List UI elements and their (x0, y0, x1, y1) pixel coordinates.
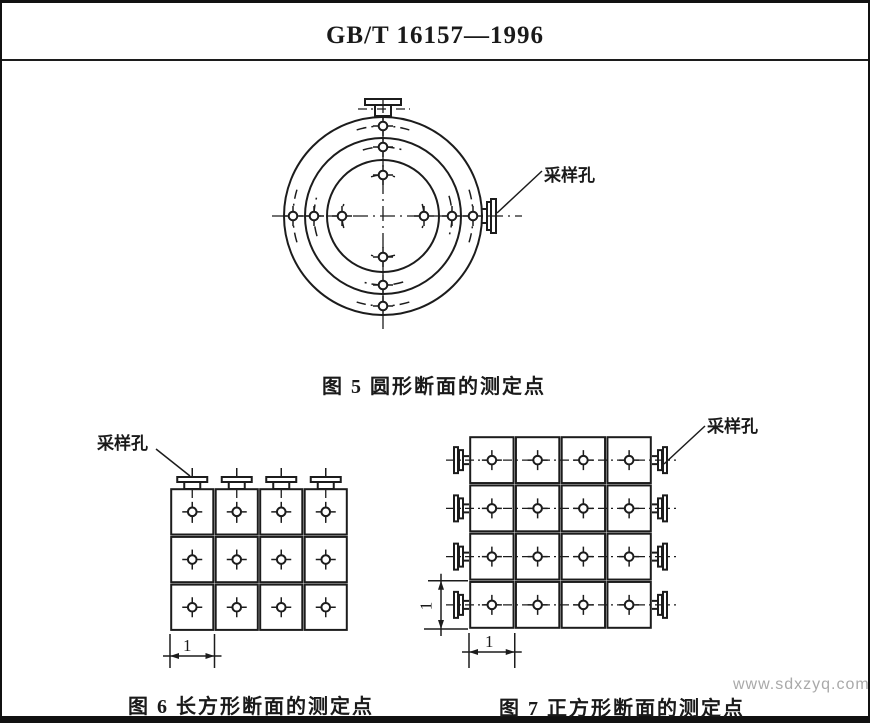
measurement-point (271, 550, 291, 570)
measurement-point (573, 450, 593, 470)
dimension-arrow (438, 581, 444, 590)
dimension-arrow (206, 653, 215, 659)
measurement-point (573, 498, 593, 518)
sampling-port-fitting (358, 99, 410, 116)
dimension-arrow (506, 649, 515, 655)
fig5-circular-section-drawing (272, 98, 542, 334)
technical-drawing-canvas (0, 0, 870, 723)
fig7-sampling-port-label: 采样孔 (707, 412, 758, 437)
measurement-point (482, 450, 502, 470)
measurement-point (528, 595, 548, 615)
dimension-arrow (469, 649, 478, 655)
measurement-point (316, 502, 336, 522)
fig7-square-section-drawing (424, 426, 705, 668)
measurement-point (373, 296, 393, 316)
measurement-point (414, 206, 434, 226)
sampling-port-fitting (177, 468, 207, 489)
fig5-caption: 图 5 圆形断面的测定点 (322, 370, 546, 399)
measurement-point (227, 550, 247, 570)
leader-line (664, 426, 705, 464)
measurement-point (316, 550, 336, 570)
measurement-point (482, 498, 502, 518)
measurement-point (182, 597, 202, 617)
measurement-point (271, 597, 291, 617)
measurement-point (373, 275, 393, 295)
measurement-point (482, 595, 502, 615)
measurement-point (528, 498, 548, 518)
fig6-cell-width-dimension-label: 1 (183, 636, 192, 656)
dimension-arrow (170, 653, 179, 659)
measurement-point (373, 137, 393, 157)
measurement-point (182, 550, 202, 570)
measurement-point (619, 547, 639, 567)
measurement-point (373, 165, 393, 185)
measurement-point (304, 206, 324, 226)
dimension-arrow (438, 620, 444, 629)
measurement-point (271, 502, 291, 522)
measurement-point (373, 247, 393, 267)
measurement-point (316, 597, 336, 617)
fig6-width-dimension (163, 634, 222, 668)
fig5-sampling-port-label: 采样孔 (544, 161, 595, 186)
measurement-point (528, 450, 548, 470)
measurement-point (619, 450, 639, 470)
measurement-point (182, 502, 202, 522)
fig7-cell-width-dimension-label: 1 (485, 632, 494, 652)
measurement-point (573, 547, 593, 567)
fig6-caption: 图 6 长方形断面的测定点 (128, 690, 374, 719)
measurement-point (619, 595, 639, 615)
watermark-text: www.sdxzyq.com (733, 676, 870, 694)
measurement-point (373, 116, 393, 136)
measurement-point (332, 206, 352, 226)
leader-line (156, 449, 190, 476)
measurement-point (482, 547, 502, 567)
measurement-point (283, 206, 303, 226)
standard-document-page: GB/T 16157—1996 采样孔 图 5 圆形断面的测定点 采样孔 1 图… (0, 0, 870, 723)
sampling-port-fitting (222, 468, 252, 489)
fig6-sampling-port-label: 采样孔 (97, 429, 148, 454)
measurement-point (442, 206, 462, 226)
fig7-caption: 图 7 正方形断面的测定点 (499, 692, 745, 721)
measurement-point (619, 498, 639, 518)
sampling-port-fitting (266, 468, 296, 489)
measurement-point (227, 502, 247, 522)
measurement-point (573, 595, 593, 615)
leader-line (497, 171, 542, 213)
measurement-point (227, 597, 247, 617)
sampling-port-fitting (311, 468, 341, 489)
measurement-point (463, 206, 483, 226)
fig7-cell-height-dimension-label: 1 (416, 602, 436, 611)
measurement-point (528, 547, 548, 567)
